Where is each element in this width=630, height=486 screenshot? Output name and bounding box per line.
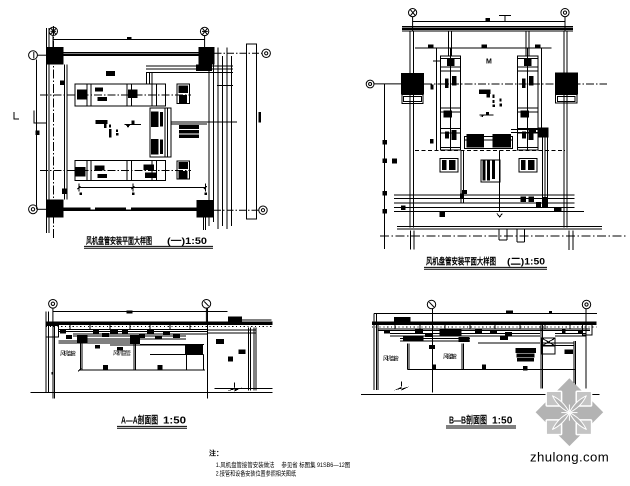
svg-text:风机盘管: 风机盘管 bbox=[443, 353, 458, 361]
svg-text:B—B剖面图: B—B剖面图 bbox=[449, 413, 487, 426]
svg-text:zhulong.com: zhulong.com bbox=[530, 450, 609, 465]
svg-text:(一)1:50: (一)1:50 bbox=[167, 236, 207, 246]
svg-text:1:50: 1:50 bbox=[163, 416, 186, 427]
svg-text:(二)1:50: (二)1:50 bbox=[507, 257, 545, 267]
svg-text:M: M bbox=[486, 59, 492, 66]
svg-text:注：: 注： bbox=[209, 449, 223, 458]
svg-text:1:50: 1:50 bbox=[492, 415, 513, 426]
svg-text:风机盘管安装平面大样图: 风机盘管安装平面大样图 bbox=[86, 235, 152, 246]
svg-text:1.风机盘管接管安装做法 参见省 标图集 91SB6—12: 1.风机盘管接管安装做法 参见省 标图集 91SB6—12图 bbox=[216, 460, 351, 469]
svg-text:风机盘管安装平面大样图: 风机盘管安装平面大样图 bbox=[426, 256, 496, 267]
svg-text:风机盘管: 风机盘管 bbox=[60, 350, 77, 358]
svg-text:风机盘管: 风机盘管 bbox=[113, 349, 132, 357]
svg-text:A—A剖面图: A—A剖面图 bbox=[121, 414, 158, 427]
svg-text:2.接管和设备安装位置参照相关图纸: 2.接管和设备安装位置参照相关图纸 bbox=[216, 469, 297, 478]
svg-text:风机盘管: 风机盘管 bbox=[383, 355, 400, 363]
